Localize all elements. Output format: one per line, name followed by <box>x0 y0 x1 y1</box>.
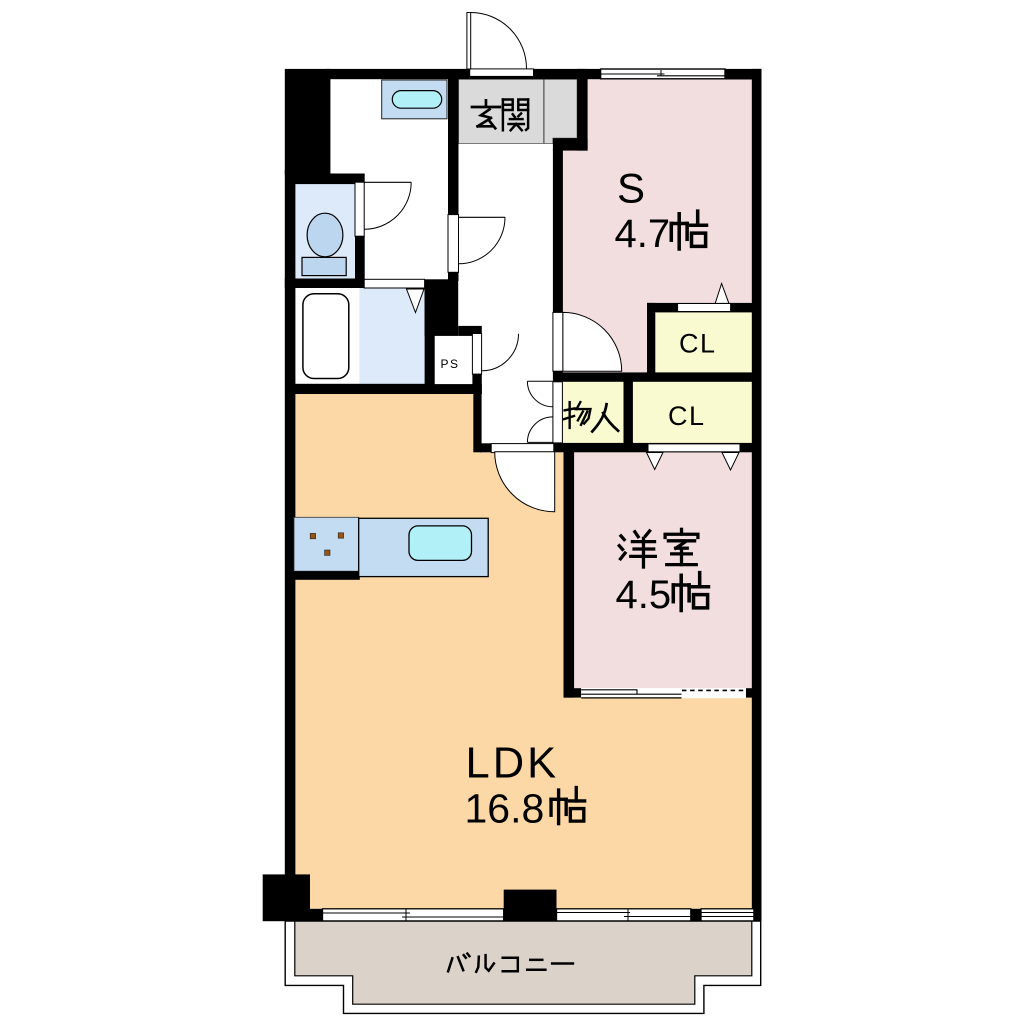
svg-text:CL: CL <box>668 401 706 431</box>
svg-text:LDK: LDK <box>466 740 560 788</box>
svg-text:CL: CL <box>679 329 717 359</box>
svg-text:4.5: 4.5 <box>616 573 672 617</box>
svg-text:16.8: 16.8 <box>465 786 545 832</box>
svg-text:PS: PS <box>441 357 460 371</box>
svg-text:4.7: 4.7 <box>615 212 671 256</box>
svg-text:S: S <box>617 165 645 212</box>
